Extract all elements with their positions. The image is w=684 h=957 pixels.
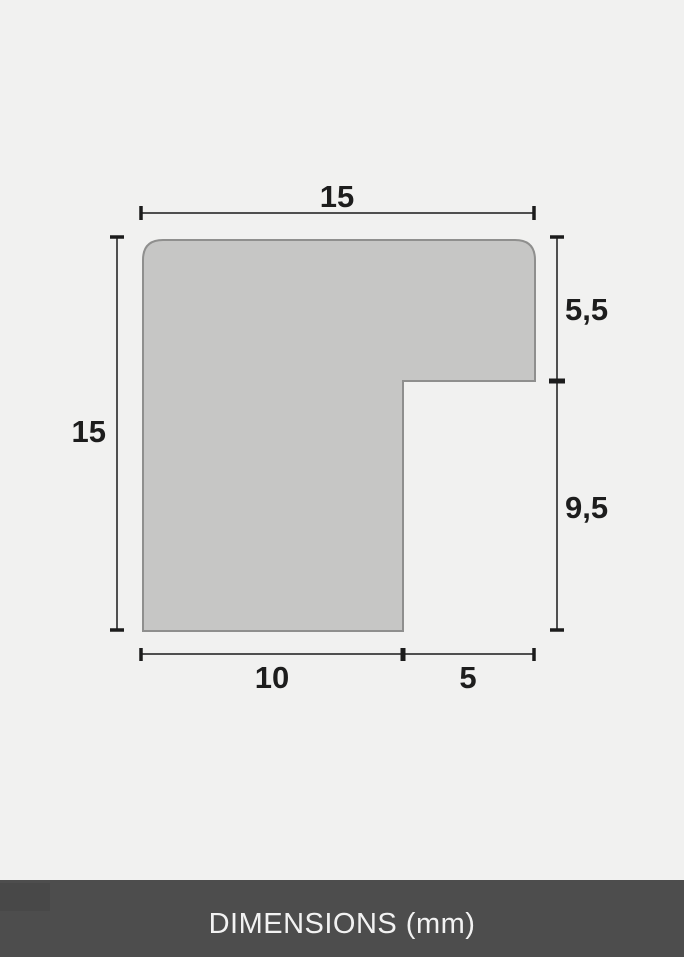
label-right-upper: 5,5: [565, 292, 608, 327]
label-bottom-right: 5: [459, 660, 476, 695]
label-right-lower: 9,5: [565, 490, 608, 525]
footer-corner-shade: [0, 883, 50, 911]
footer-bar: DIMENSIONS (mm): [0, 880, 684, 957]
label-top-width: 15: [320, 179, 354, 214]
label-left-height: 15: [72, 414, 106, 449]
label-bottom-left: 10: [255, 660, 289, 695]
footer-title: DIMENSIONS (mm): [209, 910, 476, 939]
frame-profile-shape: [143, 240, 535, 631]
frame-profile-diagram: 15 15 5,5 9,5 10 5: [0, 0, 684, 880]
product-dimension-view: 15 15 5,5 9,5 10 5 DIMENSIONS (mm): [0, 0, 684, 957]
